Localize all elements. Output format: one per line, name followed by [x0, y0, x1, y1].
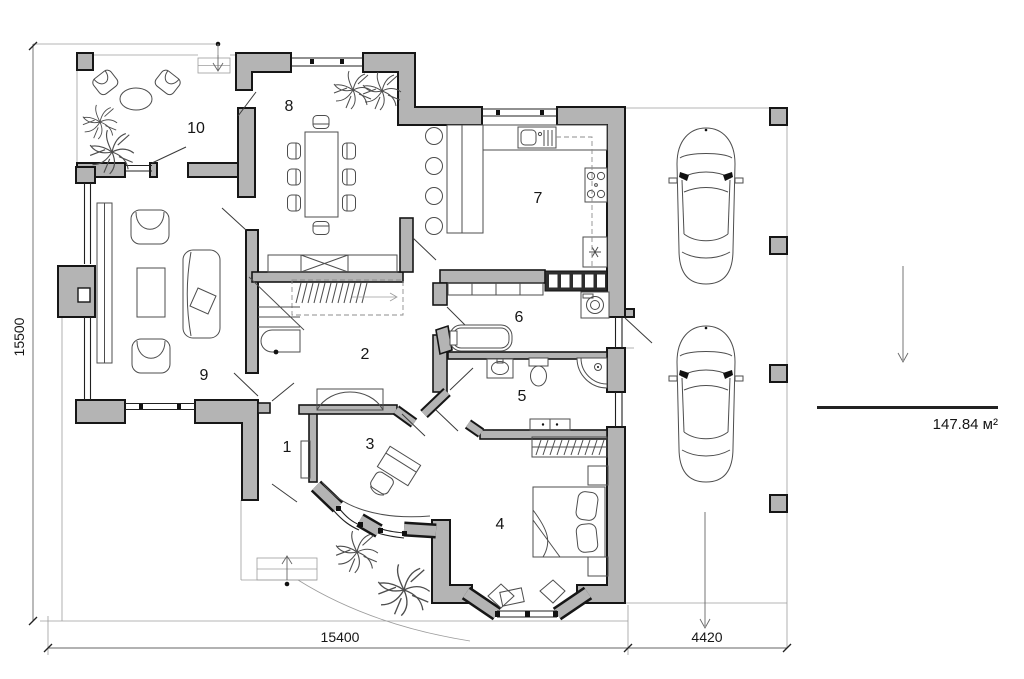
plant-icon	[363, 72, 401, 110]
washbasin-icon	[487, 359, 513, 378]
room-label-6: 6	[515, 309, 524, 326]
car-top-view-icon	[669, 326, 743, 482]
nightstand-icon	[588, 466, 608, 485]
bed-icon	[533, 487, 605, 557]
plant-icon	[83, 105, 117, 139]
round-table-icon	[120, 88, 152, 110]
toilet-icon	[529, 358, 548, 386]
room-label-10: 10	[187, 120, 205, 137]
plant-icon	[336, 531, 378, 573]
desk-chair-icon	[367, 470, 395, 498]
carport-post-icon	[770, 365, 787, 382]
desk-icon	[377, 446, 420, 485]
plant-icon	[334, 71, 372, 109]
floor-plan-canvas: 15500 15400 4420 147.84 м² 1 2 3 4 5 6 7…	[0, 0, 1024, 679]
floor-plan-page: 15500 15400 4420 147.84 м² 1 2 3 4 5 6 7…	[0, 0, 1024, 679]
living-furniture	[97, 203, 220, 373]
stool-icon	[426, 218, 443, 235]
stove-icon	[585, 168, 607, 202]
kitchen-sink-icon	[518, 127, 556, 148]
bay-cushion-icon	[540, 580, 565, 603]
carport-post-icon	[770, 495, 787, 512]
car-top-view-icon	[669, 128, 743, 284]
plant-icon	[378, 564, 429, 615]
carport-post-icon	[770, 237, 787, 254]
room-label-1: 1	[283, 439, 292, 456]
room-label-9: 9	[200, 367, 209, 384]
terrace-furniture	[83, 68, 182, 174]
fridge-icon	[583, 237, 607, 267]
armchair-icon	[91, 68, 120, 97]
room-label-7: 7	[534, 190, 543, 207]
area-label: 147.84 м²	[933, 416, 998, 433]
fireplace-niche	[78, 288, 90, 302]
armchair-icon	[131, 210, 169, 244]
area-annotation: 147.84 м²	[817, 406, 998, 433]
terrace-entrance-arrow	[198, 42, 230, 73]
stool-icon	[426, 128, 443, 145]
area-underline	[817, 406, 998, 409]
doors	[152, 92, 652, 502]
terrace-post	[77, 53, 93, 70]
room-label-2: 2	[361, 346, 370, 363]
nightstand-icon	[588, 557, 608, 576]
bedroom-furniture	[488, 437, 608, 608]
room-label-8: 8	[285, 98, 294, 115]
bathtub-icon	[450, 325, 512, 351]
armchair-icon	[153, 68, 182, 97]
wardrobe-icon	[532, 437, 607, 457]
kitchen-bar-counter	[447, 125, 483, 233]
study-bay-walls	[316, 486, 436, 531]
kitchen-furniture	[426, 125, 608, 268]
main-entrance-steps	[257, 556, 317, 586]
staircase-icon	[249, 277, 403, 354]
carport	[669, 108, 908, 628]
corner-shower-icon	[577, 358, 607, 388]
stool-icon	[426, 188, 443, 205]
bathroom5-fixtures	[487, 358, 607, 430]
dim-label-left: 15500	[11, 317, 27, 356]
bathroom6-fixtures	[448, 271, 609, 351]
stool-icon	[426, 158, 443, 175]
armchair-icon	[132, 339, 170, 373]
site-lines	[40, 55, 787, 648]
room-label-4: 4	[496, 516, 505, 533]
coffee-table-icon	[137, 268, 165, 317]
carport-post-icon	[770, 108, 787, 125]
dim-label-bottom-side: 4420	[691, 629, 722, 645]
dining-table-icon	[305, 132, 338, 217]
dresser-icon	[530, 419, 570, 430]
sofa-icon	[183, 250, 220, 338]
room-label-3: 3	[366, 436, 375, 453]
room-label-5: 5	[518, 388, 527, 405]
dim-label-bottom-main: 15400	[321, 629, 360, 645]
washing-machine-icon	[581, 292, 609, 318]
